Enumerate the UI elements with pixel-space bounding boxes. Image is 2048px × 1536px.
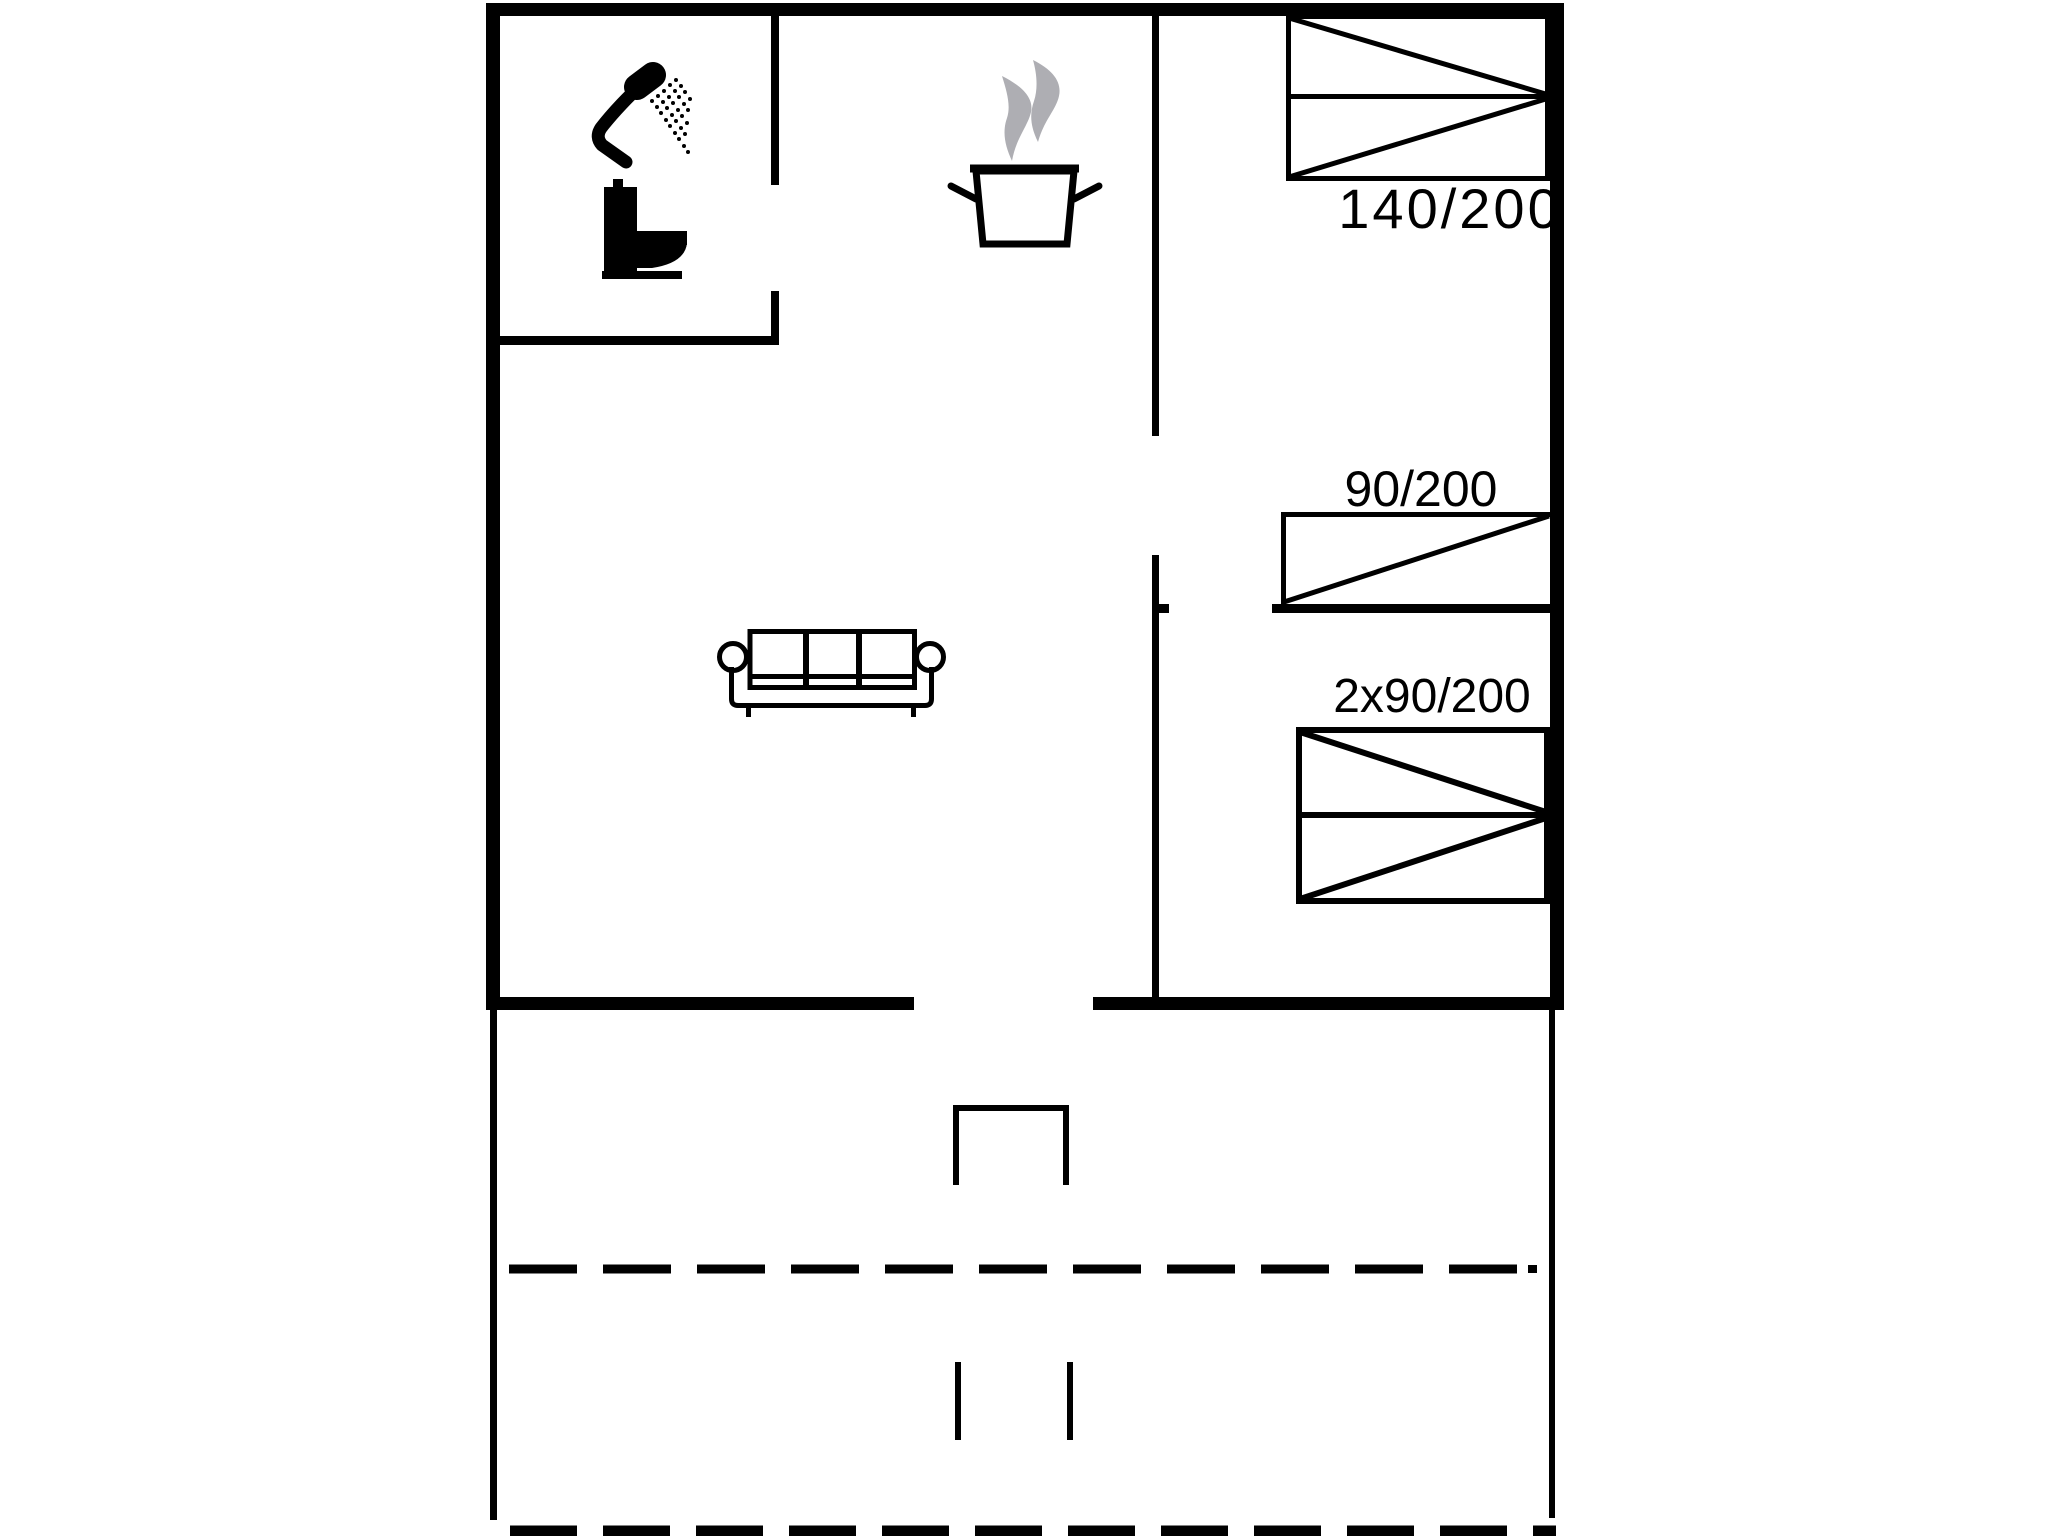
svg-text:90/200: 90/200 xyxy=(1345,461,1498,517)
svg-text:140/200: 140/200 xyxy=(1338,177,1561,240)
svg-text:2x90/200: 2x90/200 xyxy=(1333,670,1531,723)
